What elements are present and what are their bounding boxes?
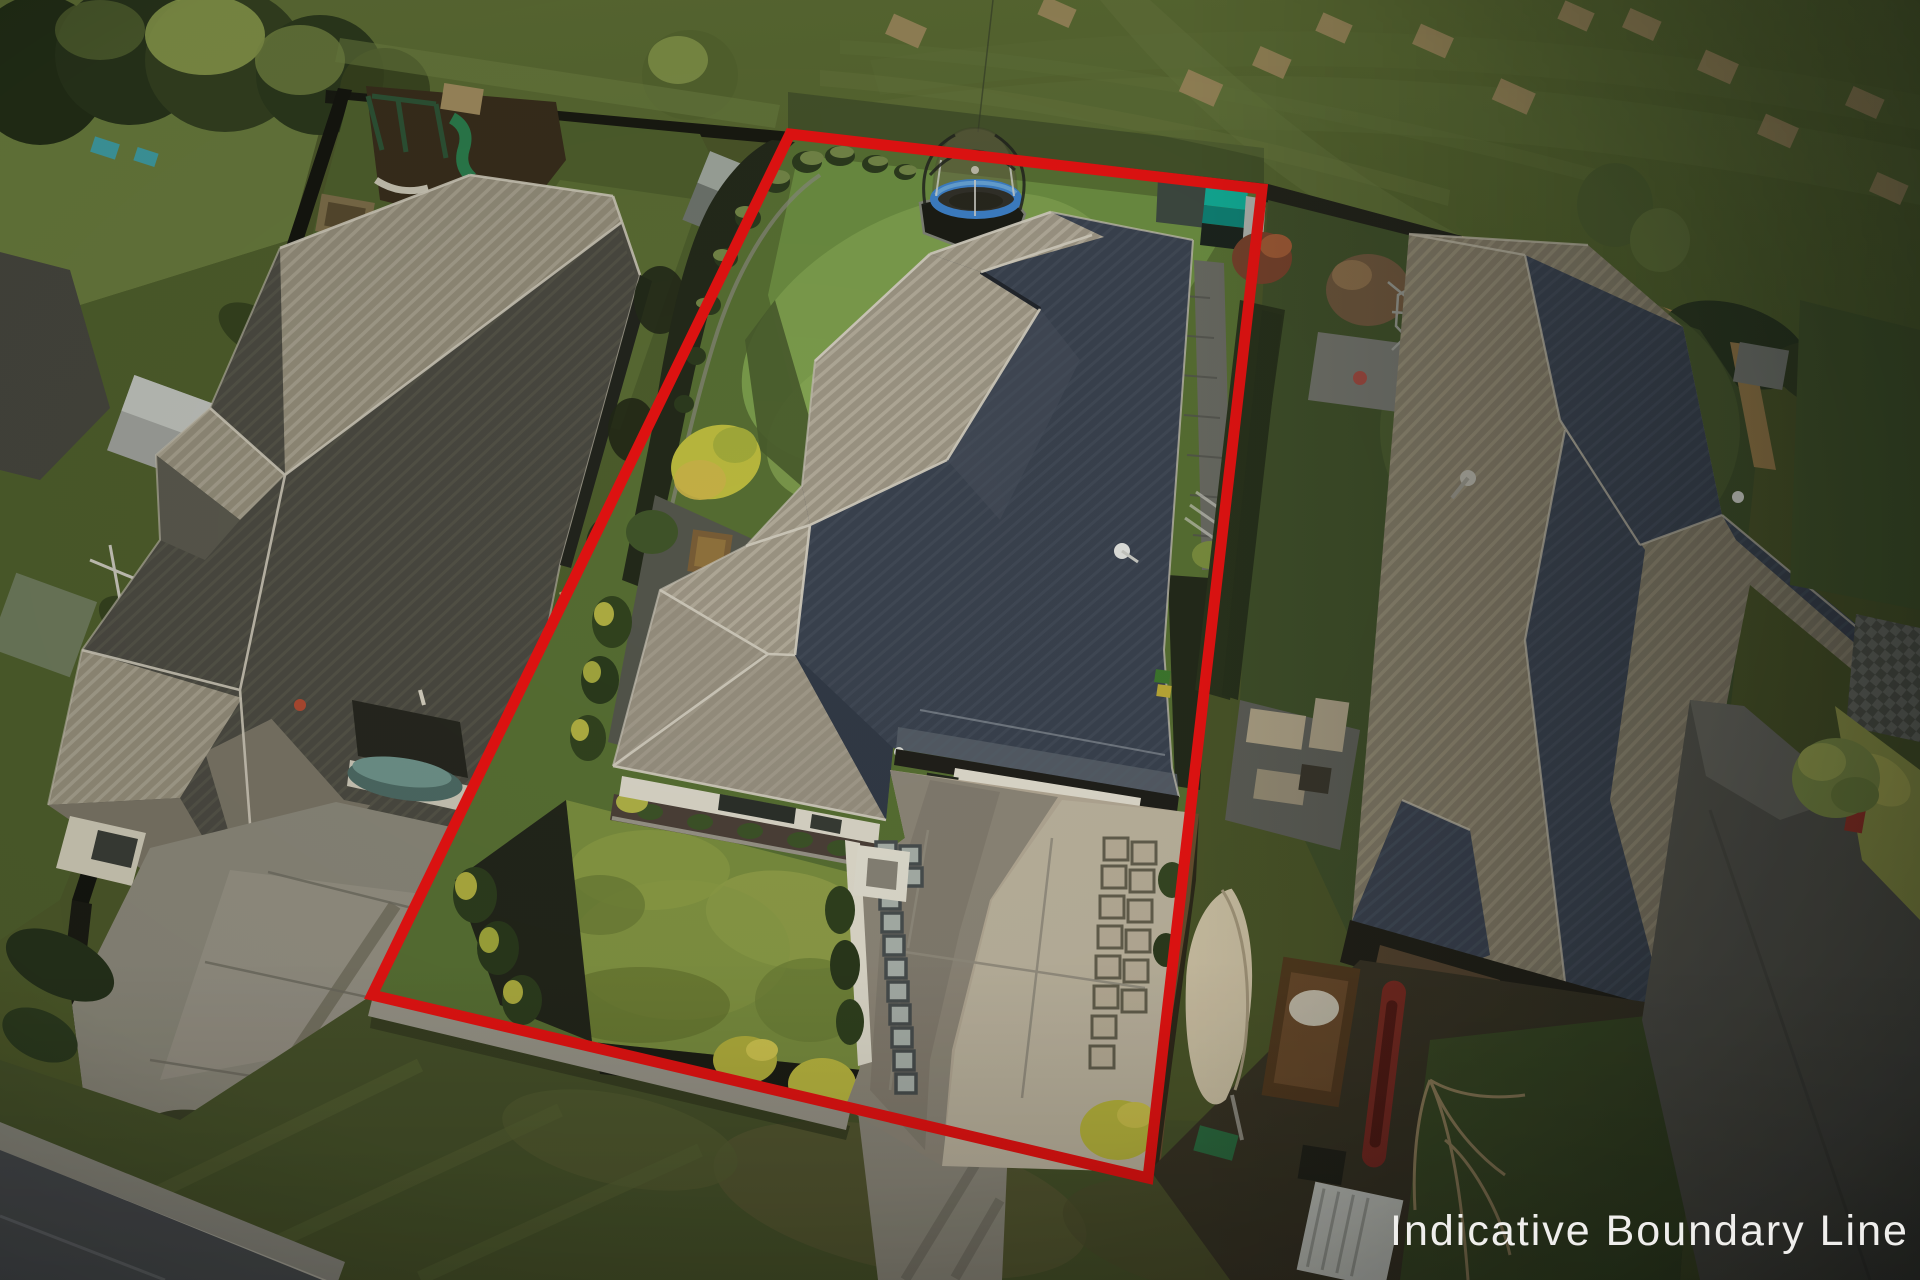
svg-text:Indicative Boundary Line: Indicative Boundary Line xyxy=(1390,1207,1909,1255)
